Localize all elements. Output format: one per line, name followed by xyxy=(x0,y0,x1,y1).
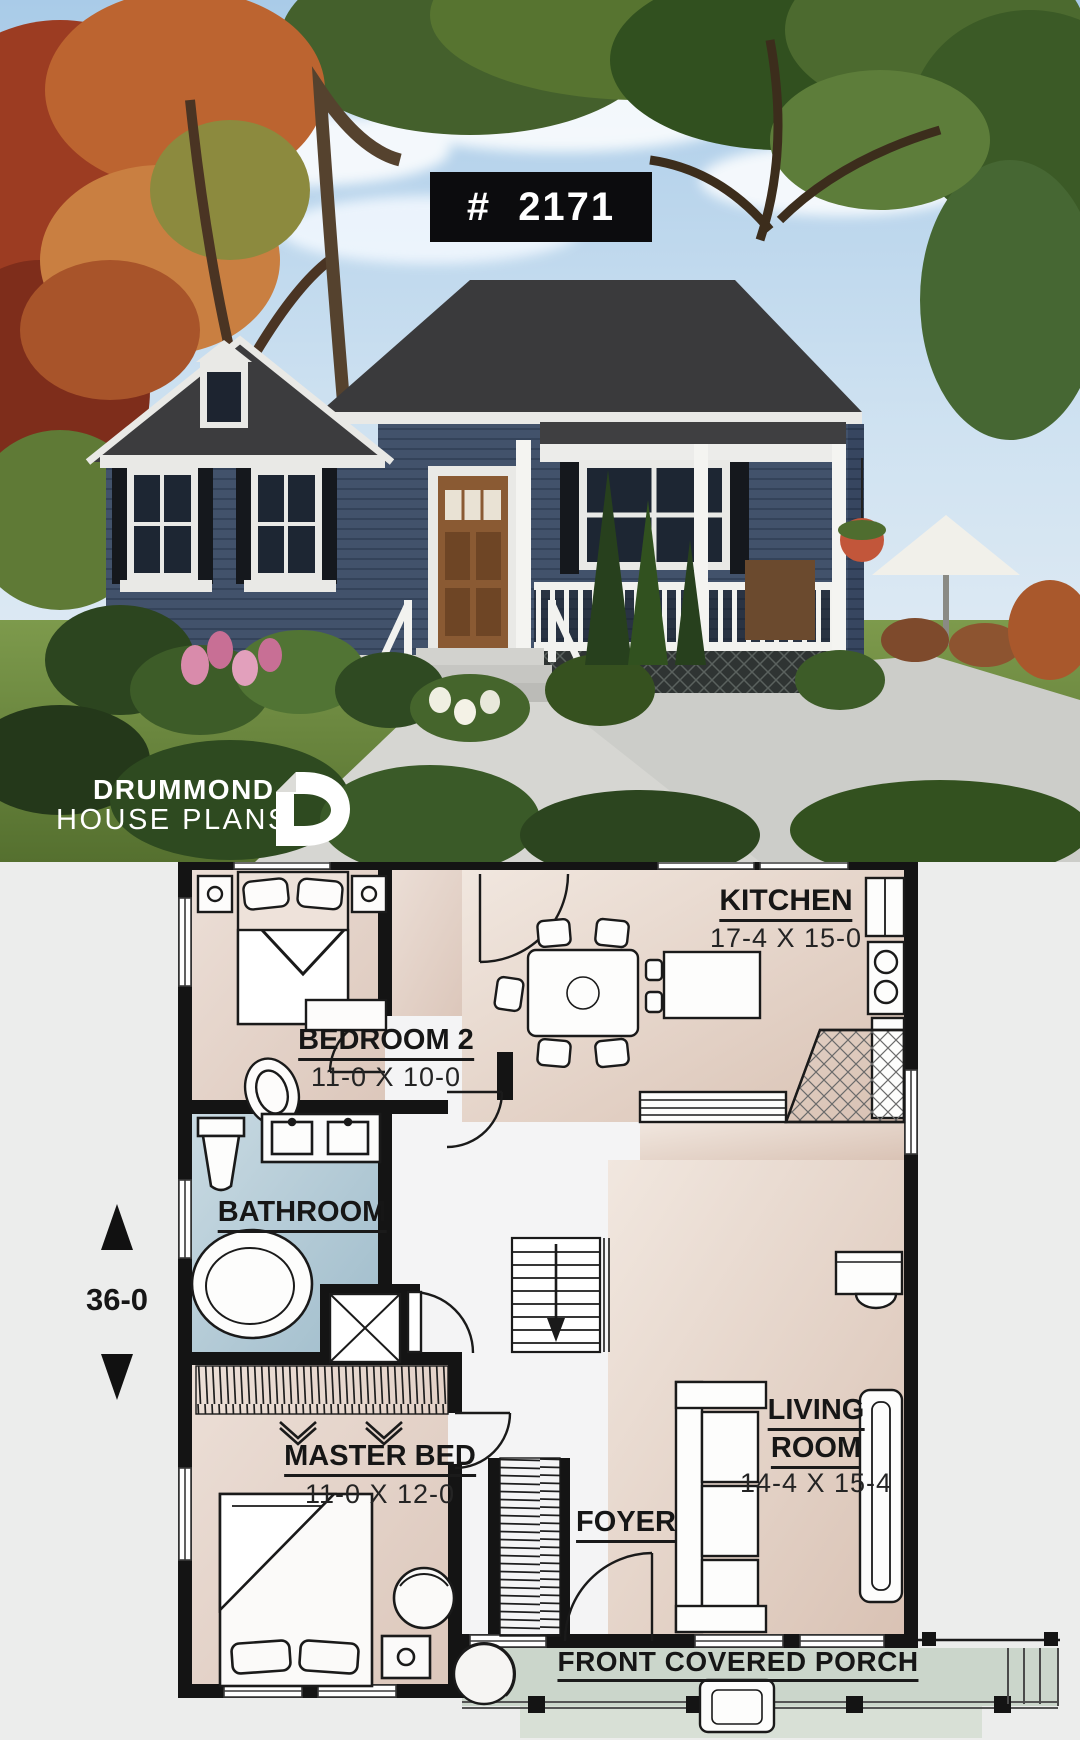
porch-post-left xyxy=(516,440,531,655)
bathroom-label: BATHROOM xyxy=(218,1198,387,1233)
porch-bench xyxy=(745,560,815,640)
plan-number: # 2171 xyxy=(467,185,615,230)
poster: # 2171 DRUMMOND HOUSE PLANS xyxy=(0,0,1080,1740)
kitchen-label: KITCHEN xyxy=(719,886,852,922)
wing-window-right xyxy=(236,468,337,592)
floor-plan-svg xyxy=(0,862,1080,1740)
floor-plan: KITCHEN 17-4 X 15-0 BEDROOM 2 11-0 X 10-… xyxy=(0,862,1080,1740)
dimension-arrow-up xyxy=(101,1204,133,1250)
basement-stairs xyxy=(500,1458,560,1636)
living-label-2: ROOM xyxy=(771,1434,861,1469)
porch-fascia xyxy=(540,444,846,462)
bedroom2-label: BEDROOM 2 xyxy=(298,1026,474,1061)
living-dims: 14-4 X 15-4 xyxy=(740,1468,892,1499)
drummond-logo: DRUMMOND HOUSE PLANS xyxy=(52,752,352,852)
house-photo: # 2171 DRUMMOND HOUSE PLANS xyxy=(0,0,1080,862)
porch-roof xyxy=(540,422,846,444)
kitchen-floor-ext xyxy=(640,1122,904,1162)
overall-depth-label: 36-0 xyxy=(86,1284,148,1315)
logo-d-icon xyxy=(266,758,358,854)
front-door xyxy=(428,466,518,652)
wing-fascia xyxy=(100,455,385,468)
master-dims: 11-0 X 12-0 xyxy=(305,1479,455,1510)
linen-closet xyxy=(330,1294,400,1362)
living-label-1: LIVING xyxy=(768,1396,865,1431)
master-closet xyxy=(196,1366,448,1414)
plan-number-plate: # 2171 xyxy=(430,172,652,242)
bedroom2-floor-ext xyxy=(385,870,462,1016)
kitchen-dims: 17-4 X 15-0 xyxy=(710,923,862,954)
porch-label: FRONT COVERED PORCH xyxy=(557,1648,918,1682)
staircase xyxy=(512,1238,609,1352)
porch-planter xyxy=(454,1644,514,1704)
house-rendering-svg xyxy=(0,0,1080,862)
logo-line1: DRUMMOND xyxy=(93,774,275,806)
foyer-label: FOYER xyxy=(576,1508,676,1543)
wing-window-left xyxy=(112,468,213,592)
dimension-arrow-down xyxy=(101,1354,133,1400)
logo-line2: HOUSE PLANS xyxy=(56,804,290,837)
master-label: MASTER BED xyxy=(284,1442,476,1477)
bedroom2-dims: 11-0 X 10-0 xyxy=(311,1062,461,1093)
